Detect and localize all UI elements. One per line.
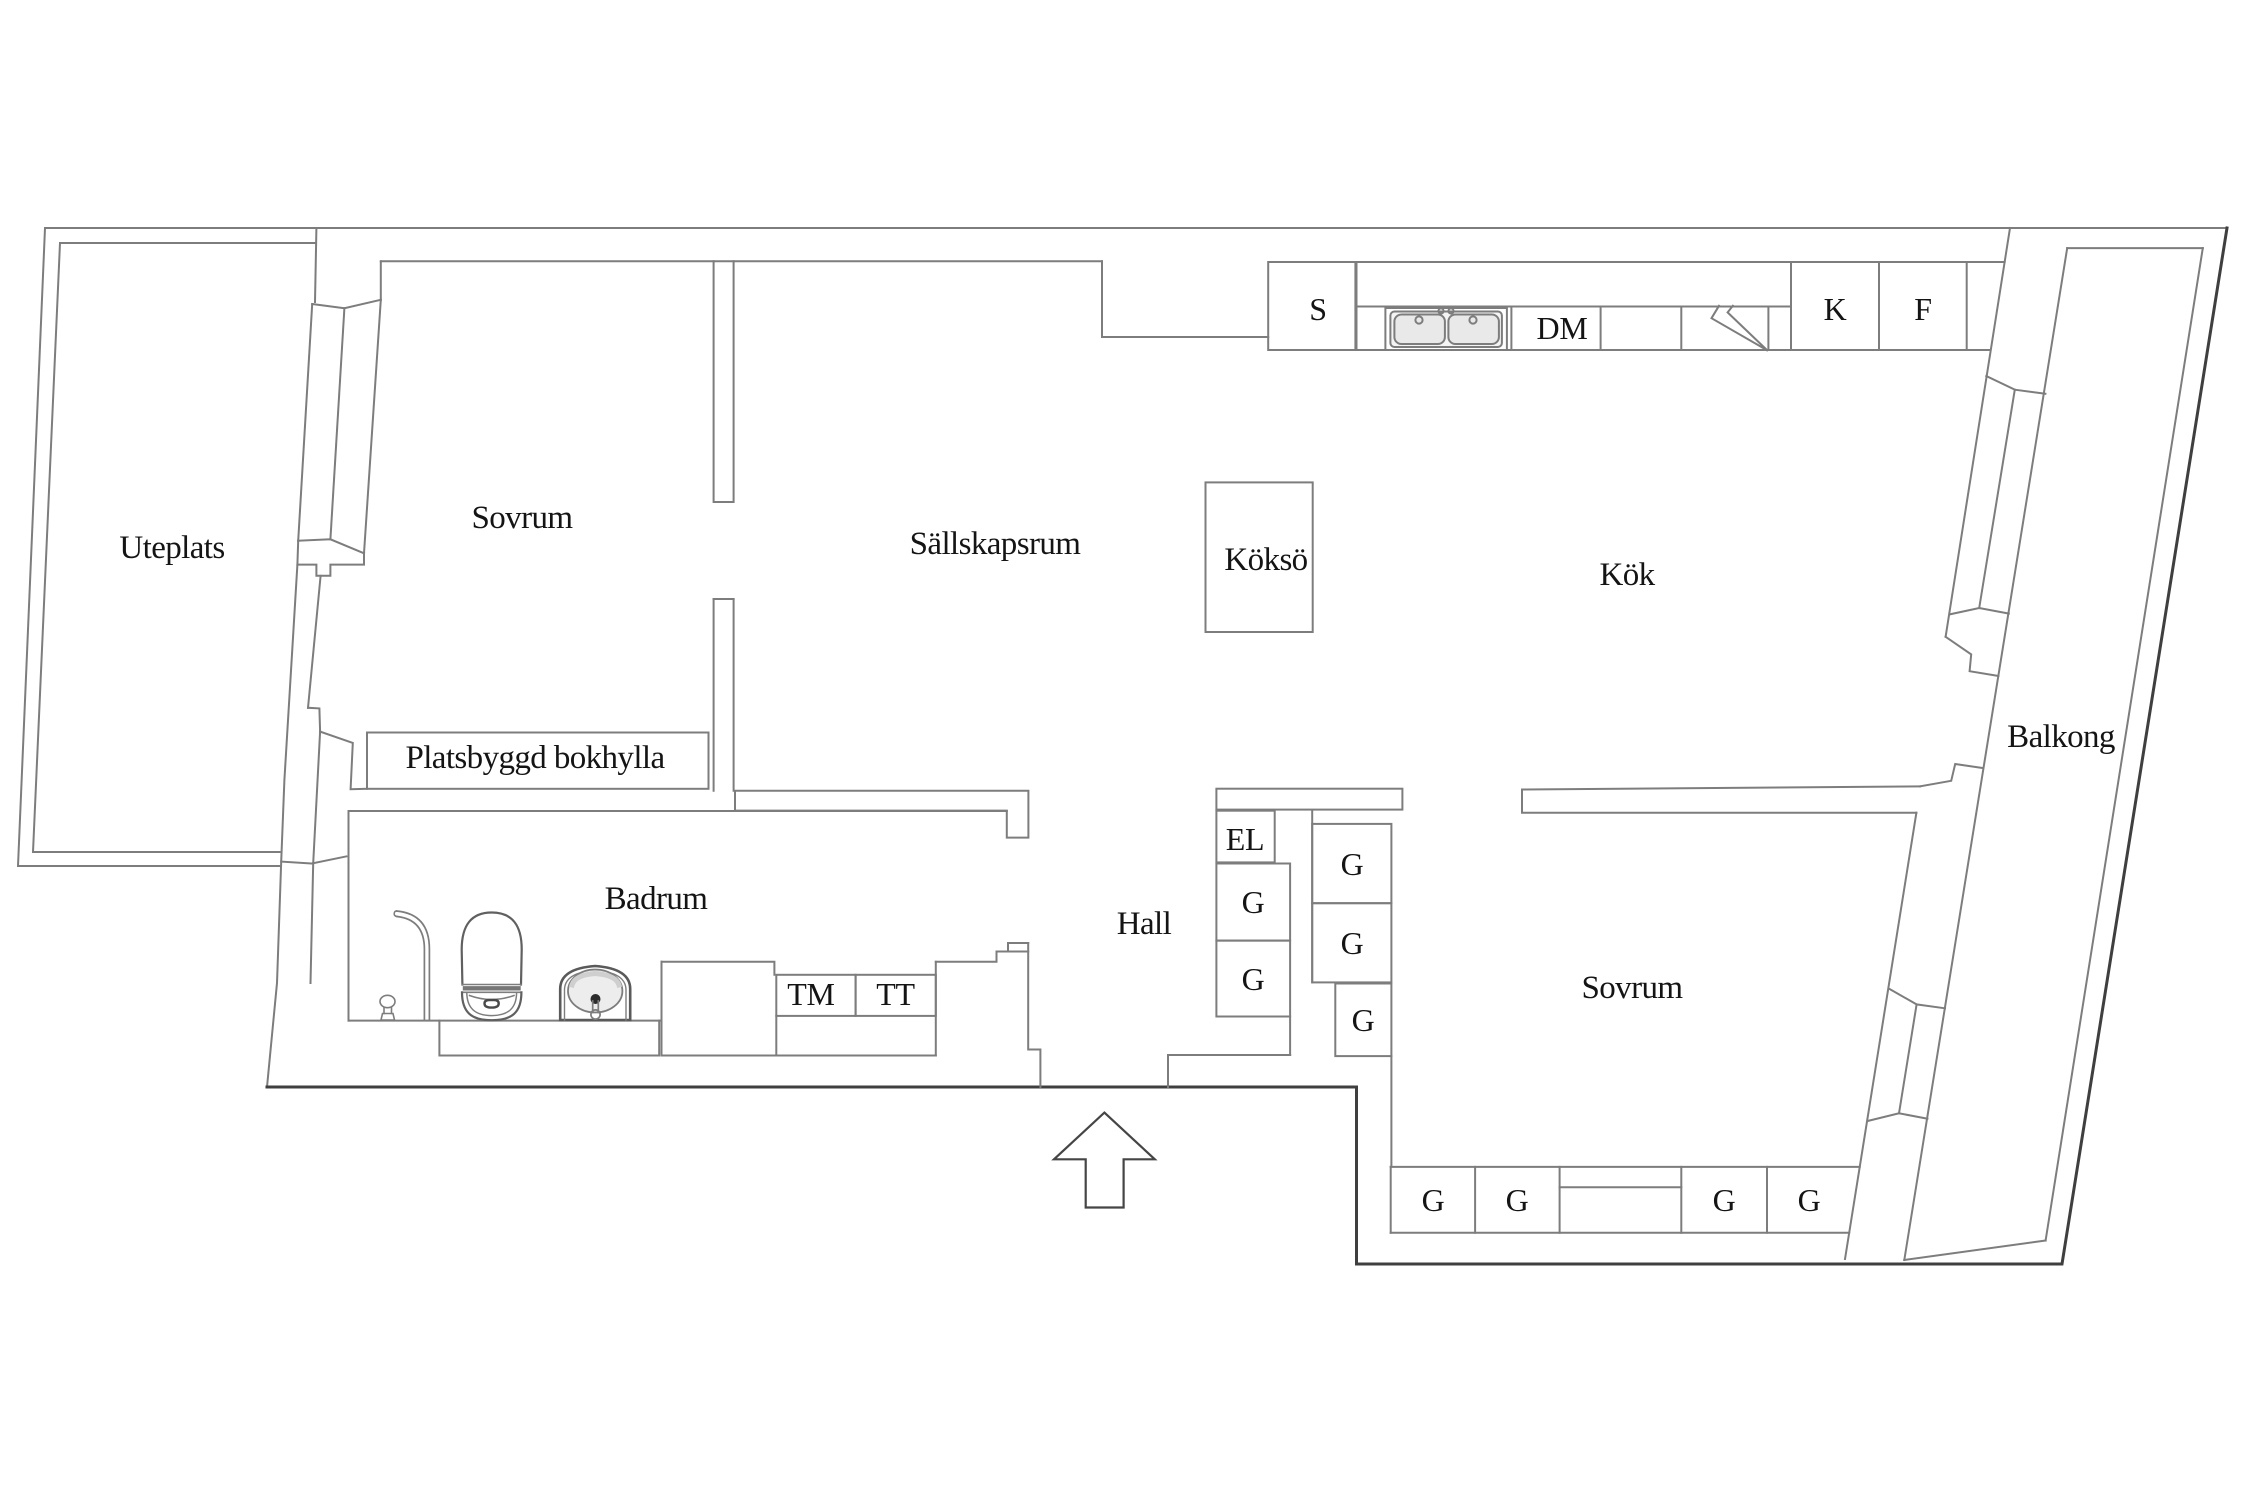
svg-text:EL: EL bbox=[1226, 821, 1265, 857]
svg-text:Sällskapsrum: Sällskapsrum bbox=[910, 526, 1082, 562]
svg-text:Sovrum: Sovrum bbox=[1582, 970, 1684, 1006]
svg-text:Balkong: Balkong bbox=[2007, 719, 2115, 755]
svg-text:G: G bbox=[1242, 884, 1265, 920]
svg-text:G: G bbox=[1341, 846, 1364, 882]
svg-text:Uteplats: Uteplats bbox=[119, 530, 224, 566]
svg-text:G: G bbox=[1798, 1182, 1821, 1218]
svg-text:Platsbyggd bokhylla: Platsbyggd bokhylla bbox=[405, 740, 665, 776]
svg-text:G: G bbox=[1352, 1002, 1375, 1038]
svg-text:G: G bbox=[1242, 961, 1265, 997]
svg-text:TM: TM bbox=[787, 976, 834, 1012]
svg-text:S: S bbox=[1309, 291, 1327, 327]
svg-text:K: K bbox=[1824, 291, 1847, 327]
svg-text:Badrum: Badrum bbox=[605, 881, 709, 917]
svg-text:G: G bbox=[1422, 1182, 1445, 1218]
svg-text:G: G bbox=[1506, 1182, 1529, 1218]
svg-text:Köksö: Köksö bbox=[1224, 542, 1307, 578]
svg-text:G: G bbox=[1713, 1182, 1736, 1218]
svg-text:Kök: Kök bbox=[1599, 557, 1655, 593]
svg-text:F: F bbox=[1914, 291, 1932, 327]
svg-text:Sovrum: Sovrum bbox=[472, 500, 574, 536]
svg-text:TT: TT bbox=[876, 976, 915, 1012]
svg-text:Hall: Hall bbox=[1117, 906, 1172, 942]
svg-text:DM: DM bbox=[1537, 310, 1588, 346]
svg-text:G: G bbox=[1341, 925, 1364, 961]
